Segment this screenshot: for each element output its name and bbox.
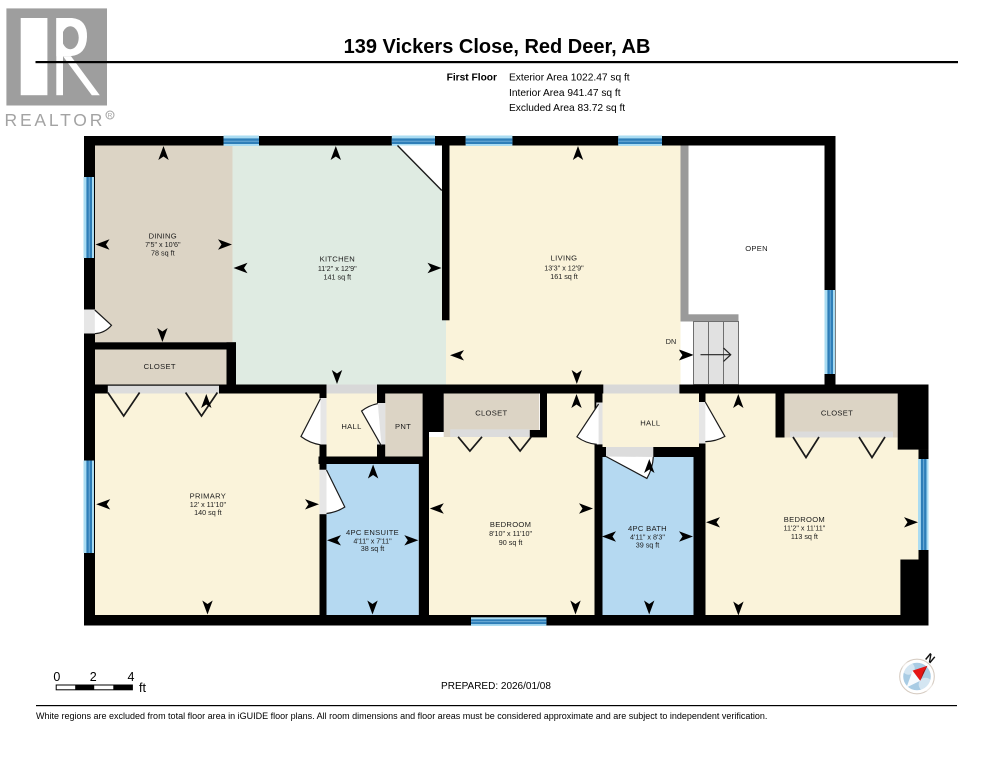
svg-text:78 sq ft: 78 sq ft — [151, 248, 175, 257]
svg-text:90 sq ft: 90 sq ft — [499, 538, 523, 547]
svg-text:Interior Area 941.47 sq ft: Interior Area 941.47 sq ft — [509, 88, 621, 99]
svg-text:KITCHEN: KITCHEN — [320, 254, 355, 263]
svg-text:First Floor: First Floor — [447, 73, 497, 84]
svg-text:ft: ft — [139, 681, 146, 695]
svg-text:Exterior Area 1022.47 sq ft: Exterior Area 1022.47 sq ft — [509, 73, 630, 84]
svg-text:140 sq ft: 140 sq ft — [194, 508, 222, 517]
svg-text:LIVING: LIVING — [551, 254, 578, 263]
svg-text:4: 4 — [128, 670, 135, 684]
svg-text:CLOSET: CLOSET — [821, 409, 853, 418]
svg-text:CLOSET: CLOSET — [475, 409, 507, 418]
svg-text:0: 0 — [53, 670, 60, 684]
svg-text:PREPARED: 2026/01/08: PREPARED: 2026/01/08 — [441, 681, 551, 692]
svg-text:2: 2 — [90, 670, 97, 684]
svg-text:OPEN: OPEN — [745, 244, 768, 253]
svg-text:BEDROOM: BEDROOM — [490, 520, 531, 529]
svg-text:HALL: HALL — [640, 419, 660, 428]
svg-text:139 Vickers Close, Red Deer, A: 139 Vickers Close, Red Deer, AB — [344, 36, 651, 58]
svg-text:39 sq ft: 39 sq ft — [636, 541, 660, 550]
svg-text:HALL: HALL — [341, 422, 361, 431]
svg-text:CLOSET: CLOSET — [144, 362, 176, 371]
svg-text:REALTOR: REALTOR — [5, 110, 106, 130]
svg-text:White regions are excluded fro: White regions are excluded from total fl… — [36, 711, 767, 721]
svg-text:8'10" x 11'10": 8'10" x 11'10" — [489, 529, 532, 538]
svg-text:PNT: PNT — [395, 422, 411, 431]
svg-text:113 sq ft: 113 sq ft — [791, 532, 818, 541]
svg-text:161 sq ft: 161 sq ft — [550, 272, 578, 281]
svg-text:141 sq ft: 141 sq ft — [324, 273, 352, 282]
svg-text:R: R — [108, 113, 113, 120]
svg-text:Excluded Area 83.72 sq ft: Excluded Area 83.72 sq ft — [509, 103, 625, 114]
svg-text:DN: DN — [666, 337, 676, 346]
svg-text:38 sq ft: 38 sq ft — [361, 544, 385, 553]
